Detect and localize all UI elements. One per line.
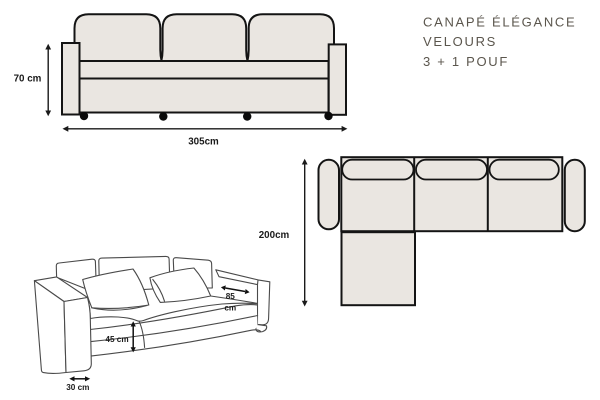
svg-text:cm: cm [224, 303, 236, 312]
svg-text:70 cm: 70 cm [14, 73, 42, 84]
svg-text:45 cm: 45 cm [105, 335, 128, 344]
svg-text:3 + 1 POUF: 3 + 1 POUF [423, 54, 509, 69]
svg-text:CANAPÉ ÉLÉGANCE: CANAPÉ ÉLÉGANCE [423, 15, 576, 30]
svg-text:VELOURS: VELOURS [423, 34, 497, 49]
svg-text:85: 85 [226, 292, 236, 301]
svg-text:200cm: 200cm [259, 230, 290, 241]
svg-text:30 cm: 30 cm [66, 383, 89, 392]
svg-text:305cm: 305cm [188, 137, 219, 148]
